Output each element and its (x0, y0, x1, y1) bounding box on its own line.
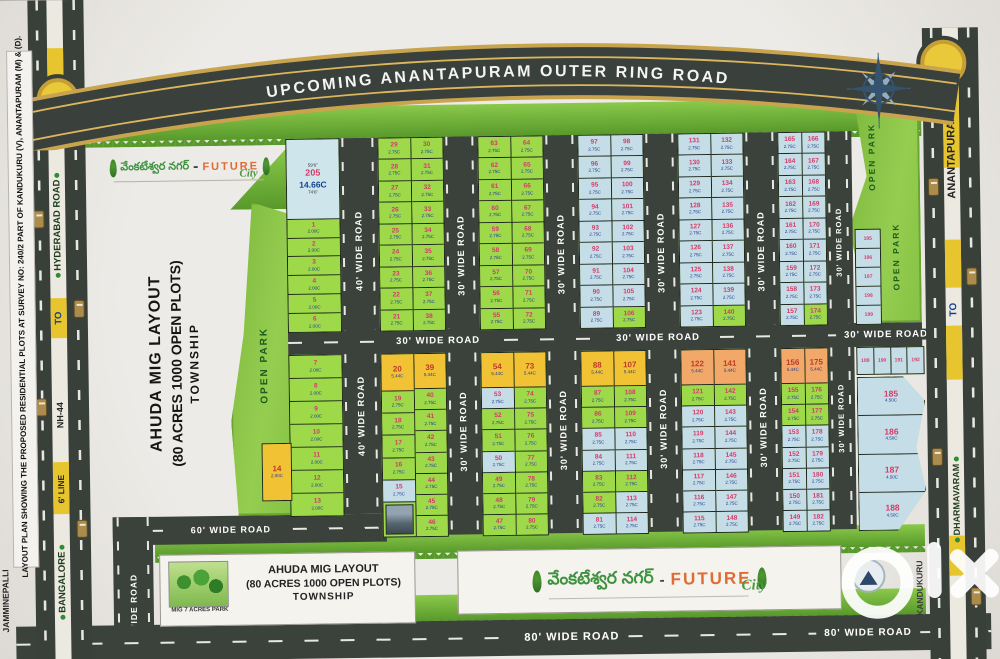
plot-59: 592.75C (480, 223, 512, 245)
plot-147: 1472.75C (716, 490, 748, 512)
olx-x-icon (951, 545, 998, 602)
plot-165: 1652.75C (778, 133, 801, 155)
plot-6: 62.00C (289, 313, 341, 332)
plot-5: 52.00C (288, 294, 340, 314)
plot-92: 922.75C (580, 243, 612, 265)
plot-20: 205.44C (381, 354, 413, 391)
plot-30: 302.75C (411, 138, 443, 160)
plot-196: 196 (856, 249, 880, 268)
plot-96: 962.75C (579, 157, 611, 179)
plot-82: 822.75C (583, 492, 615, 514)
road-60-wide-horizontal: 60' WIDE ROAD (113, 514, 387, 546)
plot-21: 212.75C (381, 310, 413, 331)
plot-88: 885.44C (581, 351, 613, 387)
plot-117: 1172.75C (683, 470, 715, 492)
road-label: 30' WIDE ROAD (608, 332, 708, 344)
plot-22: 222.75C (380, 288, 412, 310)
road-label: 30' WIDE ROAD (755, 212, 766, 292)
plot-175: 1755.44C (805, 348, 828, 384)
plot-90: 902.75C (580, 285, 612, 307)
bangalore-label: BANGALORE (56, 542, 68, 621)
plot-42: 422.75C (415, 431, 447, 453)
road-label: 30' WIDE ROAD (388, 335, 488, 347)
site-photo-thumb (385, 504, 413, 535)
plot-128: 1282.75C (679, 198, 711, 220)
plot-129: 1292.75C (679, 177, 711, 199)
plot-111: 1112.75C (615, 449, 647, 471)
plot-116: 1162.75C (683, 491, 715, 513)
plot-60: 602.75C (479, 201, 511, 223)
plot-133: 1332.75C (711, 155, 743, 177)
to-label-left: TO (53, 312, 64, 325)
plot-38: 382.75C (413, 309, 445, 330)
plot-140: 1402.75C (713, 305, 745, 326)
plot-158: 1582.75C (780, 283, 803, 305)
park-side-column: 195196197198199 (855, 229, 882, 325)
plot-78: 782.75C (515, 472, 547, 494)
plot-25: 252.75C (380, 224, 412, 246)
panel-title: AHUDA MIG LAYOUT (80 ACRES 1000 OPEN PLO… (238, 562, 409, 603)
block-81-114: 885.44C872.75C862.75C852.75C842.75C832.7… (580, 350, 649, 535)
plot-205: 59'6"20514.66C74'6" (286, 139, 339, 219)
road-label: 40' WIDE ROAD (356, 376, 367, 456)
block-21-38: 292.75C282.75C272.75C262.75C252.75C242.7… (377, 137, 446, 332)
road-label: 30' WIDE ROAD (658, 388, 669, 468)
block-15-46: 205.44C192.75C182.75C172.75C162.75C152.7… (380, 353, 449, 538)
plot-143: 1432.75C (715, 406, 747, 428)
plot-138: 1382.75C (713, 262, 745, 284)
vehicle-icon (36, 398, 47, 416)
plot-24: 242.75C (380, 245, 412, 267)
plot-95: 952.75C (579, 178, 611, 200)
plot-62: 622.75C (479, 158, 511, 180)
plot-61: 612.75C (479, 180, 511, 202)
road-label: 80' WIDE ROAD (516, 630, 627, 644)
plot-94: 942.75C (579, 200, 611, 222)
plot-149: 1492.75C (784, 511, 807, 531)
plot-99: 992.75C (611, 156, 643, 178)
plot-36: 362.75C (413, 266, 445, 288)
plot-124: 1242.75C (680, 284, 712, 306)
vehicle-icon (74, 300, 85, 318)
plot-186: 1864.50C (858, 415, 925, 454)
plot-141: 1415.44C (714, 350, 746, 386)
plot-11: 112.00C (291, 447, 343, 471)
vehicle-icon (928, 178, 939, 196)
road-label: 30' WIDE ROAD (836, 383, 846, 452)
six-line-label: 6' LINE (56, 475, 66, 504)
plot-150: 1502.75C (783, 489, 806, 510)
plot-197: 197 (856, 268, 880, 287)
plot-14: 142.00C (263, 444, 292, 500)
plot-198: 198 (856, 287, 880, 306)
plot-19: 192.75C (382, 391, 414, 414)
plot-112: 1122.75C (615, 471, 647, 493)
plot-45: 452.75C (416, 495, 448, 517)
plot-68: 682.75C (512, 222, 544, 244)
plot-75: 752.75C (515, 409, 547, 431)
plot-58: 582.75C (480, 244, 512, 266)
plot-120: 1202.75C (682, 406, 714, 428)
vehicle-icon (966, 267, 977, 285)
plot-182: 1822.75C (807, 510, 830, 530)
plot-192: 192 (908, 347, 924, 373)
plot-71: 712.75C (513, 286, 545, 308)
road-label: 30' WIDE ROAD (555, 214, 566, 294)
plot-154: 1542.75C (782, 405, 805, 426)
plot-166: 1662.75C (802, 132, 825, 154)
olx-watermark (833, 535, 990, 637)
plot-16: 162.75C (383, 458, 415, 481)
plot-181: 1812.75C (807, 489, 830, 510)
plot-118: 1182.75C (683, 449, 715, 471)
plot-28: 282.75C (379, 160, 411, 182)
plot-40: 402.75C (414, 389, 446, 411)
plot-127: 1272.75C (679, 220, 711, 242)
plot-27: 272.75C (379, 181, 411, 203)
compass-icon (846, 52, 911, 129)
plot-137: 1372.75C (712, 241, 744, 263)
block-89-106: 972.75C962.75C952.75C942.75C932.75C922.7… (577, 134, 646, 329)
plot-52: 522.75C (482, 409, 514, 431)
plot-55: 552.75C (481, 308, 513, 329)
plot-23: 232.75C (380, 267, 412, 289)
yellow-segment (946, 326, 963, 380)
plot-159: 1592.75C (780, 261, 803, 283)
plot-156: 1565.44C (781, 349, 804, 385)
title-line3: TOWNSHIP (186, 260, 203, 467)
plot-4: 42.00C (288, 276, 340, 296)
plot-79: 792.75C (516, 493, 548, 515)
plot-53: 532.75C (482, 388, 514, 410)
plot-122: 1225.44C (681, 350, 713, 386)
plot-47: 472.75C (484, 515, 516, 536)
plot-179: 1792.75C (806, 447, 829, 468)
plot-162: 1622.75C (779, 197, 802, 219)
olx-o-icon (841, 546, 914, 619)
road-label: 30' WIDE ROAD (558, 389, 569, 469)
village-label: JAMMINEPALLI (0, 569, 11, 632)
plot-199: 199 (857, 306, 881, 324)
plot-161: 1612.75C (779, 219, 802, 241)
plot-15: 152.75C (383, 480, 415, 503)
plot-146: 1462.75C (715, 469, 747, 491)
title-line2: (80 ACRES 1000 OPEN PLOTS) (238, 576, 408, 590)
road-label: 30' WIDE ROAD (758, 387, 769, 467)
block-123-140: 1312.75C1302.75C1292.75C1282.75C1272.75C… (677, 133, 746, 328)
road-label: 30' WIDE ROAD (836, 328, 936, 340)
plot-172: 1722.75C (804, 261, 827, 283)
plot-142: 1422.75C (714, 385, 746, 407)
plot-187: 1874.50C (859, 454, 926, 493)
brand-logo-top: వేంకటేశ్వర నగర్ - FUTURE City (93, 145, 286, 190)
plot-170: 1702.75C (803, 218, 826, 240)
plot-66: 662.75C (511, 179, 543, 201)
plot-10: 102.00C (290, 424, 342, 448)
plot-123: 1232.75C (681, 306, 713, 327)
road-label: 60' WIDE ROAD (183, 524, 279, 535)
plot-72: 722.75C (513, 308, 545, 329)
plot-67: 672.75C (512, 201, 544, 223)
plot-80: 802.75C (516, 514, 548, 535)
plot-35: 352.75C (412, 245, 444, 267)
plot-139: 1392.75C (713, 284, 745, 306)
nh44-label: NH-44 (55, 402, 65, 428)
plot-3: 32.00C (288, 257, 340, 277)
block-47-80: 545.44C532.75C522.75C512.75C502.75C492.7… (480, 351, 549, 536)
leaf-icon (109, 159, 116, 177)
plot-39: 395.44C (414, 354, 446, 390)
plot-97: 972.75C (578, 135, 610, 157)
mig-park-caption: MIG 7 ACRES PARK (165, 607, 235, 614)
plot-136: 1362.75C (712, 219, 744, 241)
plot-134: 1342.75C (711, 176, 743, 198)
plot-104: 1042.75C (613, 264, 645, 286)
plot-101: 1012.75C (612, 199, 644, 221)
plot-185: 1854.50C (858, 377, 925, 416)
plot-12: 122.00C (291, 470, 343, 494)
plot-33: 332.75C (412, 202, 444, 224)
plot-191: 191 (891, 347, 907, 373)
road-label: 40' WIDE ROAD (353, 211, 364, 291)
plot-106: 1062.75C (613, 306, 645, 327)
park-thumbnail (168, 561, 229, 608)
plot-7: 72.00C (289, 355, 341, 379)
road-label: 30' WIDE ROAD (455, 216, 466, 296)
plot-110: 1102.75C (615, 428, 647, 450)
plot-113: 1132.75C (616, 492, 648, 514)
plot-85: 852.75C (582, 429, 614, 451)
plot-70: 702.75C (513, 265, 545, 287)
plot-171: 1712.75C (803, 240, 826, 262)
plot-41: 412.75C (415, 410, 447, 432)
wedge-plots-185-188: 1854.50C1864.50C1874.50C1884.50C (857, 376, 927, 531)
plot-102: 1022.75C (612, 221, 644, 243)
vehicle-icon (77, 520, 88, 538)
plot-14-block: 142.00C (262, 443, 293, 501)
plot-50: 502.75C (483, 451, 515, 473)
block-55-72: 632.75C622.75C612.75C602.75C592.75C582.7… (477, 135, 546, 330)
plot-photo (383, 502, 415, 536)
wedge-top-row: 189190191192 (856, 346, 924, 375)
road-label: 30' WIDE ROAD (834, 208, 844, 277)
plot-157: 1572.75C (781, 304, 804, 325)
plot-29: 292.75C (378, 138, 410, 160)
plot-167: 1672.75C (802, 154, 825, 176)
plot-153: 1532.75C (782, 426, 805, 447)
paper: OPEN PARK OPEN PARK OPEN PARK 40' WIDE R… (0, 0, 1000, 659)
plot-189: 189 (857, 348, 873, 374)
brand-city: City (239, 167, 258, 179)
plot-155: 1552.75C (782, 384, 805, 405)
plot-54: 545.44C (481, 353, 513, 389)
plot-81: 812.75C (584, 513, 616, 534)
plot-152: 1522.75C (783, 447, 806, 468)
plot-56: 562.75C (480, 287, 512, 309)
leaf-icon (532, 570, 541, 592)
plot-8: 82.00C (290, 378, 342, 402)
to-label-right: TO (948, 303, 959, 317)
open-park-left-label: OPEN PARK (258, 327, 270, 404)
plot-93: 932.75C (579, 221, 611, 243)
plot-49: 492.75C (483, 472, 515, 494)
plot-108: 1082.75C (614, 386, 646, 408)
plot-17: 172.75C (382, 436, 414, 459)
plot-103: 1032.75C (612, 242, 644, 264)
plot-105: 1052.75C (613, 285, 645, 307)
brand-future: FUTURE (670, 569, 751, 590)
plot-32: 322.75C (411, 181, 443, 203)
plot-177: 1772.75C (806, 405, 829, 426)
plot-109: 1092.75C (615, 407, 647, 429)
block-115-148: 1225.44C1212.75C1202.75C1192.75C1182.75C… (680, 349, 749, 534)
plot-163: 1632.75C (779, 176, 802, 198)
dharmavaram-label: DHARMAVARAM (951, 455, 962, 545)
plot-115: 1152.75C (684, 512, 716, 533)
plot-65: 652.75C (511, 158, 543, 180)
plot-151: 1512.75C (783, 468, 806, 489)
plot-100: 1002.75C (611, 178, 643, 200)
yellow-segment (945, 240, 962, 288)
title-line1: AHUDA MIG LAYOUT (238, 562, 408, 576)
plot-46: 462.75C (416, 516, 448, 537)
plot-2: 22.00C (288, 238, 340, 258)
plot-76: 762.75C (515, 430, 547, 452)
plot-43: 432.75C (415, 452, 447, 474)
plot-18: 182.75C (382, 413, 414, 436)
brand-logo-bottom: వేంకటేశ్వర నగర్ - FUTURE City (457, 545, 842, 614)
plot-169: 1692.75C (803, 197, 826, 219)
block-157-174: 1652.75C1642.75C1632.75C1622.75C1612.75C… (777, 131, 828, 326)
vehicle-icon (33, 210, 44, 228)
plot-9: 92.00C (290, 401, 342, 425)
leaf-icon (263, 157, 270, 175)
road-40-wide: 40' WIDE ROAD 40' WIDE ROAD (337, 138, 382, 515)
plot-37: 372.75C (413, 288, 445, 310)
plot-173: 1732.75C (804, 283, 827, 305)
plot-180: 1802.75C (806, 468, 829, 489)
brand-telugu: వేంకటేశ్వర నగర్ (120, 160, 189, 176)
plot-63: 632.75C (478, 137, 510, 159)
plot-87: 872.75C (582, 387, 614, 409)
title-line1: AHUDA MIG LAYOUT (146, 260, 167, 467)
plot-190: 190 (874, 348, 890, 374)
strip-block-upper: 59'6"20514.66C74'6"12.00C22.00C32.00C42.… (285, 138, 342, 333)
hyderabad-road-label: HYDERABAD ROAD (51, 170, 64, 279)
plot-84: 842.75C (583, 450, 615, 472)
block-149-182: 1565.44C1552.75C1542.75C1532.75C1522.75C… (780, 347, 831, 532)
title-line3: TOWNSHIP (239, 590, 409, 603)
plot-107: 1075.44C (614, 351, 646, 387)
plot-69: 692.75C (512, 244, 544, 266)
title-line2: (80 ACRES 1000 OPEN PLOTS) (167, 260, 186, 467)
plot-57: 572.75C (480, 265, 512, 287)
plot-195: 195 (856, 230, 880, 249)
olx-bar-icon (927, 542, 942, 598)
plot-86: 862.75C (582, 408, 614, 430)
plot-145: 1452.75C (715, 448, 747, 470)
vehicle-icon (932, 448, 943, 466)
plot-178: 1782.75C (806, 426, 829, 447)
brand-city: City (741, 577, 766, 594)
plot-114: 1142.75C (616, 513, 648, 534)
info-panel: MIG 7 ACRES PARK AHUDA MIG LAYOUT (80 AC… (159, 551, 416, 627)
plot-13: 132.00C (291, 493, 343, 516)
plot-176: 1762.75C (805, 384, 828, 405)
plot-31: 312.75C (411, 159, 443, 181)
plot-119: 1192.75C (682, 427, 714, 449)
plot-98: 982.75C (611, 135, 643, 157)
plot-144: 1442.75C (715, 427, 747, 449)
plot-126: 1262.75C (680, 241, 712, 263)
brand-dash: - (659, 571, 664, 588)
layout-title-vertical: AHUDA MIG LAYOUT (80 ACRES 1000 OPEN PLO… (146, 260, 203, 467)
plot-1: 12.00C (287, 219, 339, 239)
plot-83: 832.75C (583, 471, 615, 493)
plot-121: 1212.75C (682, 385, 714, 407)
plot-34: 342.75C (412, 224, 444, 246)
open-park-right-label-2: OPEN PARK (891, 222, 902, 290)
plot-132: 1322.75C (711, 134, 743, 156)
plot-168: 1682.75C (802, 175, 825, 197)
plot-51: 512.75C (482, 430, 514, 452)
plot-73: 735.44C (514, 352, 546, 388)
road-label: 30' WIDE ROAD (655, 213, 666, 293)
plot-174: 1742.75C (804, 304, 827, 325)
plot-74: 742.75C (514, 388, 546, 410)
plot-135: 1352.75C (712, 198, 744, 220)
plot-91: 912.75C (580, 264, 612, 286)
plot-125: 1252.75C (680, 263, 712, 285)
plot-130: 1302.75C (679, 155, 711, 177)
plot-44: 442.75C (416, 473, 448, 495)
plot-64: 642.75C (511, 136, 543, 158)
plot-148: 1482.75C (716, 511, 748, 532)
plot-48: 482.75C (483, 494, 515, 516)
layout-plan-photo: OPEN PARK OPEN PARK OPEN PARK 40' WIDE R… (0, 0, 1000, 659)
brand-telugu: వేంకటేశ్వర నగర్ (547, 568, 653, 593)
road-label: 30' WIDE ROAD (458, 391, 469, 471)
plot-164: 1642.75C (779, 154, 802, 176)
plot-77: 772.75C (515, 451, 547, 473)
plot-26: 262.75C (379, 203, 411, 225)
plot-89: 892.75C (581, 307, 613, 328)
plot-160: 1602.75C (780, 240, 803, 262)
strip-block-lower: 72.00C82.00C92.00C102.00C112.00C122.00C1… (288, 354, 344, 517)
plot-131: 1312.75C (678, 134, 710, 156)
brand-dash: - (193, 158, 199, 176)
